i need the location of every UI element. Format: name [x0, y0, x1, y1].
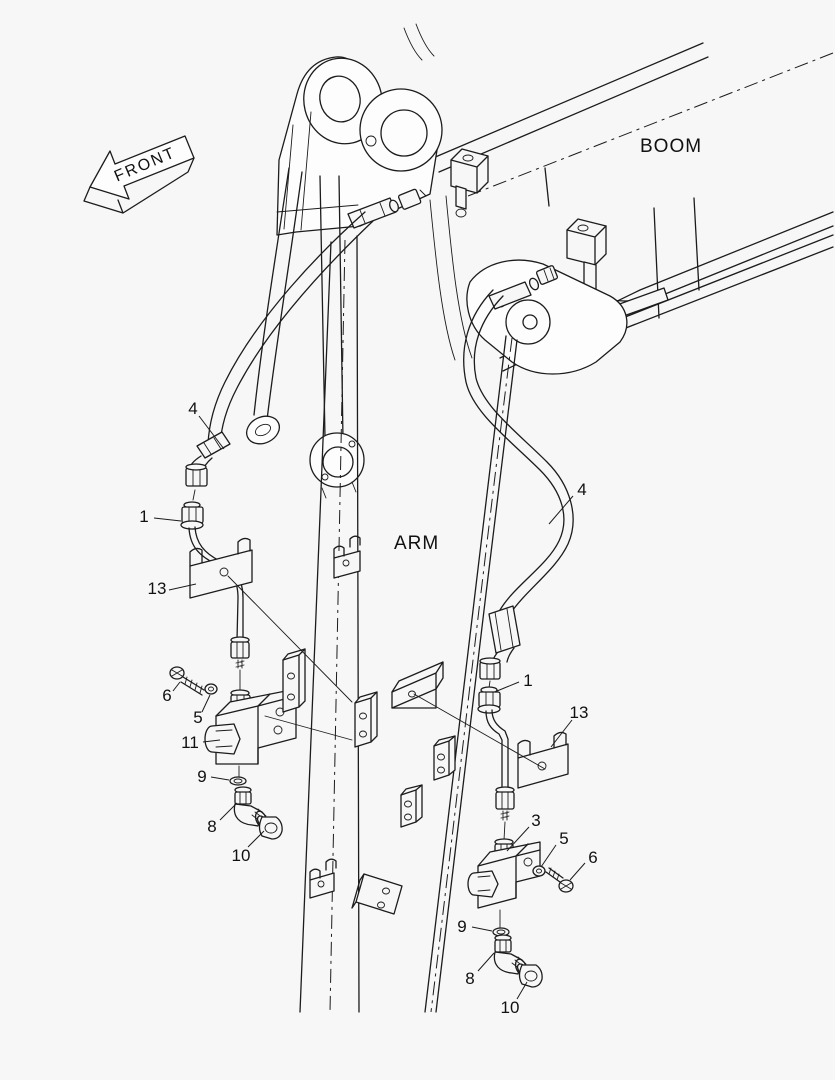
right-bolt-6: [546, 868, 573, 892]
left-oring-9: [230, 777, 246, 785]
block-plate-left: [283, 649, 305, 712]
callout-right-5: 5: [559, 829, 568, 848]
callout-right-4: 4: [577, 480, 586, 499]
callout-right-13: 13: [570, 703, 589, 722]
callout-left-13: 13: [148, 579, 167, 598]
front-arrow: FRONT: [84, 136, 194, 213]
block-plate-right-2: [401, 785, 422, 827]
boom-label: BOOM: [640, 136, 702, 157]
callout-right-10: 10: [501, 998, 520, 1017]
callout-left-9: 9: [197, 767, 206, 786]
callout-right-9: 9: [457, 917, 466, 936]
parts-diagram: FRONT: [0, 0, 835, 1080]
block-bar: [392, 662, 443, 708]
callout-right-8: 8: [465, 969, 474, 988]
bottom-plate: [352, 874, 402, 914]
left-washer-5: [205, 684, 217, 694]
left-adapter-1: [181, 502, 203, 529]
diagram-canvas: FRONT: [0, 0, 835, 1080]
right-clamp-13: [518, 732, 568, 788]
right-tube: [486, 710, 514, 840]
callout-right-1: 1: [523, 671, 532, 690]
right-adapter-1: [478, 687, 500, 713]
block-plate-arm: [355, 692, 377, 747]
left-hose-assembly: [170, 212, 373, 839]
block-plate-right-1: [434, 736, 455, 780]
callout-left-5: 5: [193, 708, 202, 727]
callout-left-4: 4: [188, 399, 197, 418]
callout-right-6: 6: [588, 848, 597, 867]
callout-left-11: 11: [181, 733, 199, 752]
callout-right-3: 3: [531, 811, 540, 830]
boom-clamp-block-a: [451, 149, 488, 217]
right-washer-5: [533, 866, 545, 876]
left-tube: [189, 527, 249, 690]
mid-arm-clamp: [334, 536, 360, 578]
arm-head: [277, 50, 442, 235]
callout-left-8: 8: [207, 817, 216, 836]
bottom-clamp: [310, 859, 336, 898]
callout-left-1: 1: [139, 507, 148, 526]
right-valve-3: [468, 839, 540, 928]
arm-label: ARM: [394, 533, 439, 554]
callout-left-10: 10: [232, 846, 251, 865]
callout-left-6: 6: [162, 686, 171, 705]
left-bolt-6: [170, 667, 204, 695]
boom-cylinder-foot: [467, 260, 627, 374]
